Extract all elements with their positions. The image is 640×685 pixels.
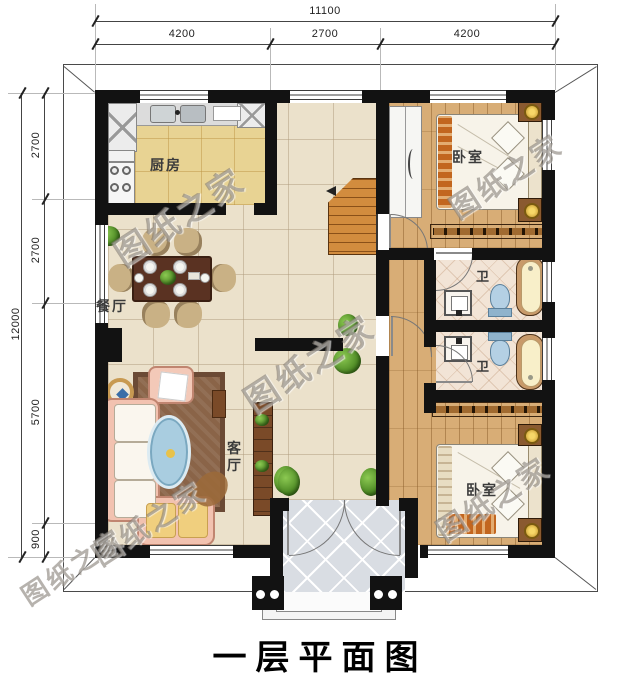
plant bbox=[278, 468, 300, 496]
dim-left-segment-label: 2700 bbox=[30, 115, 42, 175]
dim-top-segment-label: 4200 bbox=[142, 28, 222, 40]
window-bath-bottom-east bbox=[542, 338, 555, 380]
lamp-icon bbox=[524, 428, 540, 444]
table-decor-icon bbox=[166, 449, 175, 458]
stove-burner bbox=[110, 183, 119, 192]
dim-left-segment-label: 900 bbox=[30, 509, 42, 569]
dining-plate bbox=[134, 273, 144, 283]
wall-bath-south bbox=[424, 390, 555, 402]
kitchen-sink-basin bbox=[180, 105, 206, 123]
sink-basin bbox=[451, 296, 468, 311]
extension-line bbox=[32, 199, 95, 200]
window-hall-north bbox=[290, 90, 362, 103]
dining-plate bbox=[143, 283, 157, 297]
toilet-tank bbox=[488, 308, 512, 317]
bathtub bbox=[516, 256, 544, 316]
plan-title: 一层平面图 bbox=[0, 630, 640, 679]
floor-plan-page: 11100 4200 2700 4200 12000 2700 2700 570… bbox=[0, 0, 640, 685]
bedroom-top-label: 卧室 bbox=[452, 147, 484, 167]
dim-top-segment-label: 4200 bbox=[427, 28, 507, 40]
dining-label: 餐厅 bbox=[96, 296, 128, 316]
dim-top-total-line bbox=[95, 21, 555, 22]
kitchen-appliance bbox=[213, 106, 241, 121]
dim-left-segment-label: 5700 bbox=[30, 382, 42, 442]
wall-bedroom-top-south bbox=[389, 248, 434, 260]
faucet-icon bbox=[456, 338, 462, 344]
coat-rack bbox=[430, 224, 548, 239]
dim-top-segment-label: 2700 bbox=[285, 28, 365, 40]
sofa-cushion bbox=[114, 404, 156, 442]
window-bedroom-bottom-south bbox=[428, 545, 508, 558]
wall-bedroom-top-south bbox=[472, 248, 555, 260]
entry-steps-inner bbox=[276, 590, 382, 612]
bath-bottom-label: 卫 bbox=[476, 356, 491, 375]
dim-left-segment-label: 2700 bbox=[30, 220, 42, 280]
wall-porch-left bbox=[270, 498, 283, 578]
dim-top-segment-line bbox=[95, 44, 555, 45]
dining-plate bbox=[200, 273, 210, 283]
drain-icon bbox=[528, 375, 533, 380]
dining-plate bbox=[173, 283, 187, 297]
wall-hall-east bbox=[376, 356, 389, 506]
bath-sink bbox=[444, 290, 472, 316]
wall-porch-right bbox=[405, 498, 418, 578]
lamp-icon bbox=[524, 104, 540, 120]
column-dot bbox=[270, 590, 279, 599]
window-kitchen-north bbox=[140, 90, 208, 103]
wardrobe-handle-icon bbox=[408, 149, 418, 179]
living-label: 客厅 bbox=[227, 440, 243, 474]
bath-top-label: 卫 bbox=[476, 266, 491, 285]
table-tray bbox=[188, 272, 200, 280]
faucet-icon bbox=[456, 310, 462, 316]
stove-burner bbox=[122, 183, 131, 192]
dining-chair bbox=[142, 300, 170, 328]
extension-line bbox=[380, 28, 381, 90]
faucet-icon bbox=[175, 110, 180, 115]
coat-rack bbox=[432, 402, 550, 417]
kitchen-label: 厨房 bbox=[150, 155, 182, 175]
stairs-arrow-icon bbox=[326, 186, 336, 196]
dining-chair bbox=[210, 264, 236, 292]
drain-icon bbox=[528, 266, 533, 271]
dining-chair bbox=[174, 300, 202, 328]
toilet bbox=[490, 284, 510, 310]
kitchen-drawer bbox=[108, 150, 135, 162]
wall-hall-east bbox=[376, 250, 389, 316]
dining-plate bbox=[173, 260, 187, 274]
lamp-icon bbox=[524, 203, 540, 219]
wall-pier bbox=[108, 328, 122, 362]
bathtub bbox=[516, 334, 544, 390]
table-centerpiece-plant bbox=[160, 270, 176, 285]
wall-hall-east bbox=[376, 90, 389, 214]
extension-line bbox=[32, 303, 95, 304]
wall-west bbox=[95, 90, 108, 558]
wall-kitchen-east bbox=[265, 90, 277, 215]
kitchen-sink-basin bbox=[150, 105, 176, 123]
column-dot bbox=[374, 590, 383, 599]
armchair-pillow bbox=[157, 371, 188, 401]
pantry-cabinet bbox=[108, 103, 137, 152]
wardrobe bbox=[389, 106, 422, 218]
dim-left-total-label: 12000 bbox=[10, 294, 22, 354]
side-table bbox=[212, 390, 226, 418]
kitchen-cabinet bbox=[237, 103, 267, 128]
stove-burner bbox=[122, 166, 131, 175]
column-dot bbox=[256, 590, 265, 599]
window-bedroom-top-north bbox=[430, 90, 506, 103]
extension-line bbox=[270, 28, 271, 90]
window-bath-top-east bbox=[542, 262, 555, 302]
wall-corridor-bath bbox=[424, 260, 436, 347]
wall-between-baths bbox=[424, 320, 555, 332]
wall-kitchen-south bbox=[254, 203, 277, 215]
window-living-south bbox=[150, 545, 233, 558]
plant bbox=[255, 460, 269, 472]
dim-left-segment-line bbox=[44, 93, 45, 557]
stove-burner bbox=[110, 166, 119, 175]
column-dot bbox=[388, 590, 397, 599]
toilet bbox=[490, 340, 510, 366]
lamp-icon bbox=[524, 523, 540, 539]
dim-top-total-label: 11100 bbox=[265, 5, 385, 17]
